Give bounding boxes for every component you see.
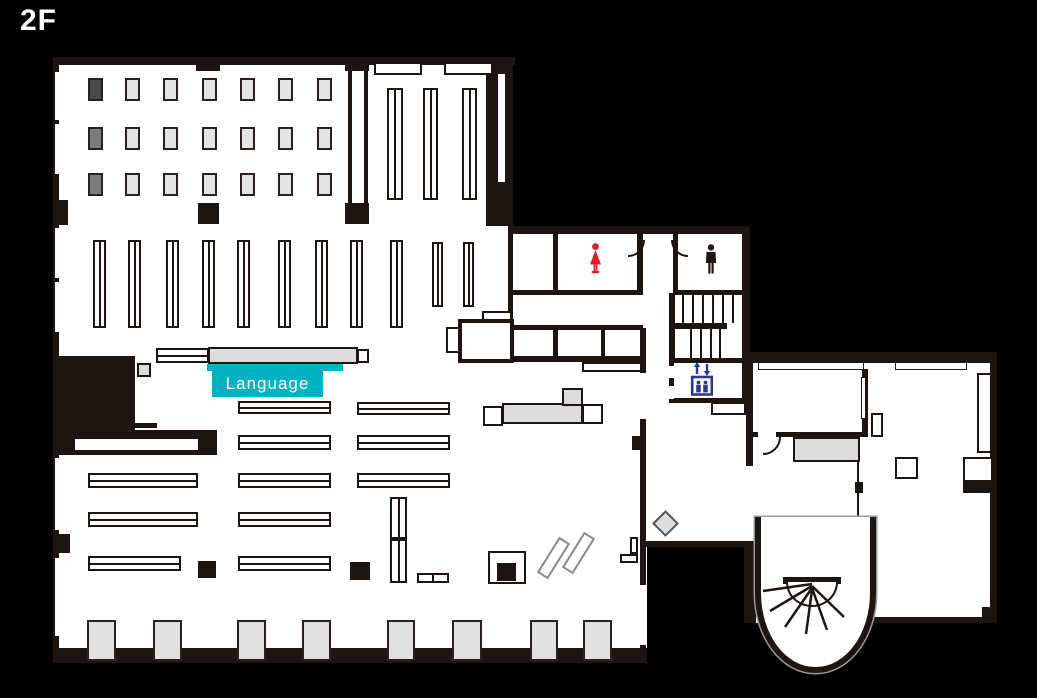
- window-slit: [55, 282, 60, 332]
- bookshelf: [315, 240, 328, 328]
- wall-room-divider: [601, 330, 605, 358]
- study-table: [125, 173, 140, 196]
- bookshelf: [238, 473, 331, 488]
- wall-dash: [135, 423, 157, 428]
- elevator-icon: [689, 362, 715, 396]
- bookshelf: [238, 435, 331, 450]
- pillar: [196, 57, 220, 71]
- closet: [711, 402, 746, 415]
- pillar: [53, 534, 70, 553]
- wall-h: [508, 325, 643, 330]
- bottom-table: [87, 620, 116, 661]
- study-table: [240, 78, 255, 101]
- bookshelf: [128, 240, 141, 328]
- wall-corridor-left: [637, 234, 643, 293]
- study-table: [202, 173, 217, 196]
- window-slit: [501, 232, 506, 290]
- window: [758, 362, 864, 370]
- wall-node: [632, 436, 643, 450]
- bookshelf: [357, 473, 450, 488]
- floor-plan-2f: 2F Language: [0, 0, 1037, 698]
- study-table: [88, 127, 103, 150]
- bookshelf: [357, 435, 450, 450]
- bottom-table: [153, 620, 182, 661]
- tread: [719, 329, 721, 361]
- counter-end: [483, 406, 503, 426]
- block: [499, 648, 520, 662]
- bookshelf: [432, 242, 443, 307]
- table: [895, 457, 918, 479]
- tread: [700, 329, 702, 361]
- wall-h: [508, 290, 643, 295]
- wall-double-line: [348, 63, 352, 206]
- wall-room-divider: [553, 330, 558, 358]
- tread: [710, 329, 712, 361]
- floor-label: 2F: [20, 4, 57, 38]
- tread: [732, 293, 734, 323]
- gray-table: [793, 437, 860, 462]
- fixture: [630, 537, 638, 554]
- study-table: [202, 127, 217, 150]
- tread: [690, 329, 692, 361]
- language-counter: [208, 347, 358, 364]
- door-gap: [669, 366, 674, 378]
- tread: [722, 293, 724, 323]
- bottom-table: [530, 620, 558, 661]
- kiosk-seat: [497, 563, 516, 581]
- study-table: [240, 173, 255, 196]
- wall-h: [673, 290, 748, 295]
- study-table: [278, 78, 293, 101]
- window-slit: [55, 558, 60, 636]
- counter-end: [582, 404, 603, 424]
- tread: [712, 293, 714, 323]
- block: [346, 648, 367, 662]
- fixture: [620, 554, 638, 563]
- bookshelf: [88, 556, 181, 571]
- bookshelf: [238, 512, 331, 527]
- bookshelf: [238, 556, 331, 571]
- window-slit: [55, 228, 60, 278]
- bookshelf: [350, 240, 363, 328]
- female-restroom-icon: [588, 243, 603, 279]
- wall-shelf: [374, 62, 422, 75]
- service-room: [458, 319, 514, 363]
- tread: [692, 293, 694, 323]
- wall-corridor-right: [673, 234, 678, 293]
- wall-shelf: [444, 62, 493, 75]
- study-table: [163, 127, 178, 150]
- study-table: [88, 173, 103, 196]
- wall-block: [963, 482, 993, 493]
- bottom-table: [302, 620, 331, 661]
- study-table: [202, 78, 217, 101]
- bookshelf: [357, 402, 450, 415]
- block: [198, 561, 216, 578]
- bookshelf: [423, 88, 438, 200]
- pillar: [198, 203, 219, 224]
- wall-step: [982, 607, 993, 618]
- male-restroom-icon: [704, 244, 718, 279]
- door-slit: [861, 377, 866, 419]
- wall-restroom-top: [508, 226, 748, 234]
- study-table: [240, 127, 255, 150]
- wall-thin-line: [857, 462, 859, 517]
- study-table: [317, 173, 332, 196]
- info-counter: [502, 403, 583, 424]
- study-table: [163, 78, 178, 101]
- door-gap: [639, 373, 646, 419]
- bookshelf: [417, 573, 449, 583]
- service-notch: [446, 327, 460, 353]
- study-table: [125, 78, 140, 101]
- passage-stripe: [75, 439, 198, 450]
- study-table: [317, 78, 332, 101]
- study-table: [278, 173, 293, 196]
- study-table: [88, 78, 103, 101]
- bookshelf: [88, 512, 198, 527]
- wall-east-bottom: [868, 617, 997, 623]
- bookshelf: [390, 497, 407, 539]
- pillar: [55, 200, 68, 225]
- bookshelf: [88, 473, 198, 488]
- bookshelf: [93, 240, 106, 328]
- tread: [702, 293, 704, 323]
- wall-roomA-bottom: [753, 432, 758, 437]
- tread: [682, 293, 684, 323]
- window: [895, 362, 967, 370]
- teal-strip: [207, 364, 343, 371]
- bookshelf: [463, 242, 474, 307]
- window-slit: [55, 124, 60, 174]
- block: [350, 562, 370, 580]
- service-step: [482, 311, 512, 321]
- bookshelf: [237, 240, 250, 328]
- bookshelf: [390, 539, 407, 583]
- bookshelf: [202, 240, 215, 328]
- study-table: [317, 127, 332, 150]
- bookshelf: [278, 240, 291, 328]
- bookshelf: [166, 240, 179, 328]
- language-label: Language: [212, 371, 323, 397]
- fixture: [963, 457, 993, 482]
- door-gap: [639, 585, 646, 645]
- gray-box: [137, 363, 151, 377]
- bottom-table: [452, 620, 482, 661]
- door-gap: [669, 386, 674, 399]
- window-slit: [55, 458, 60, 530]
- counter-cap: [357, 349, 369, 363]
- fixture: [871, 413, 883, 437]
- bookshelf: [387, 88, 403, 200]
- counter: [582, 362, 642, 372]
- bottom-table: [387, 620, 415, 661]
- study-table: [125, 127, 140, 150]
- counter-left: [156, 348, 209, 363]
- bookshelf: [238, 401, 331, 414]
- study-table: [278, 127, 293, 150]
- wall-shelf: [977, 373, 992, 453]
- bookshelf: [390, 240, 403, 328]
- wall-shelf: [496, 72, 507, 184]
- wall-double-line: [364, 63, 368, 206]
- pillar: [345, 203, 369, 224]
- wall-notch: [53, 356, 135, 432]
- bottom-table: [583, 620, 612, 661]
- wall-roomA-left: [746, 362, 753, 466]
- window-slit: [55, 72, 60, 120]
- info-counter: [562, 388, 583, 406]
- bottom-table: [237, 620, 266, 661]
- wall-room-divider: [553, 234, 558, 293]
- block: [196, 648, 217, 662]
- bookshelf: [462, 88, 477, 200]
- study-table: [163, 173, 178, 196]
